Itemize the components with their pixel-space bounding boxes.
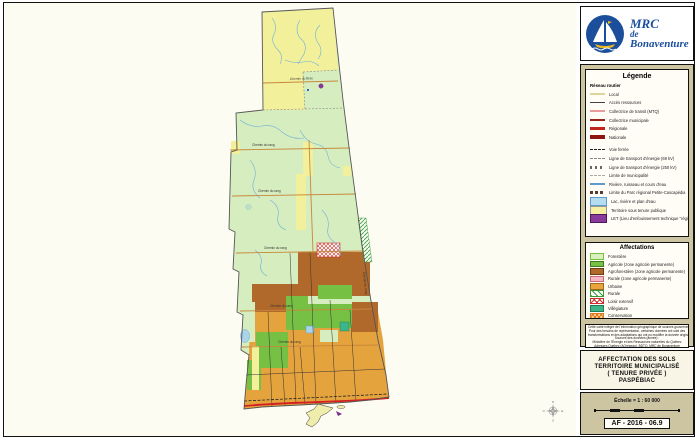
legend-item: Urbaine (590, 283, 685, 290)
svg-text:Chemin du rang: Chemin du rang (252, 143, 275, 147)
legend-item: Territoire sous tenure publique (590, 206, 685, 215)
legend-item: Conservation (590, 312, 685, 319)
riviere-swatch (590, 183, 605, 185)
title-line-3: ( TENURE PRIVÉE ) (581, 371, 693, 377)
legend-title: Légende (589, 73, 685, 80)
parc-swatch (590, 191, 605, 194)
legend-item-label: Territoire sous tenure publique (611, 208, 666, 213)
legend-item-label: Collectrice municipale (609, 118, 649, 123)
legend-item: Rivière, ruisseau et cours d'eau (590, 180, 685, 189)
ferree-swatch (590, 149, 605, 150)
legend-item: Régionale (590, 124, 685, 133)
conservation-swatch (590, 313, 604, 319)
legend-item-label: Conservation (608, 313, 632, 318)
legend-item: Villégiature (590, 305, 685, 312)
compass-n: N (552, 400, 554, 404)
legend-item: Lac, rivière et plan d'eau (590, 197, 685, 206)
legend-item: Collectrice de transit (MTQ) (590, 107, 685, 116)
legend-item-label: Ligne de transport d'énergie (69 kV) (609, 156, 674, 161)
legend-item: Voie ferrée (590, 146, 685, 155)
compass-s: S (552, 419, 554, 423)
colmun-swatch (590, 119, 605, 121)
logo-wordmark: MRC de Bonaventure (630, 17, 689, 51)
legend-item-label: Nationale (609, 135, 626, 140)
legend-item-label: Rurale (608, 291, 620, 296)
title-line-4: PASPÉBIAC (581, 378, 693, 384)
legend-item: Agricole (zone agricole permanente) (590, 260, 685, 267)
site-marker (307, 89, 309, 91)
legend-item-label: Voie ferrée (609, 147, 629, 152)
let-swatch (590, 214, 607, 223)
zone-loisir-extensif (317, 243, 340, 257)
legend-item: Local (590, 90, 685, 99)
legend-item-label: Villégiature (608, 306, 628, 311)
e250-swatch (590, 166, 605, 169)
legend-item-label: Accès ressources (609, 100, 641, 105)
loisir-swatch (590, 298, 604, 305)
legend-item-label: Limite du Parc régional Petite-Cascapédi… (609, 190, 685, 195)
legend-item: Accès ressources (590, 99, 685, 108)
legend-roads-heading: Réseau routier (590, 83, 685, 88)
legend-item: Limite du Parc régional Petite-Cascapédi… (590, 189, 685, 198)
svg-text:Chemin du rang: Chemin du rang (264, 246, 287, 250)
legend-item: Loisir extensif (590, 297, 685, 304)
road-label-main: Chemin du Bras (290, 76, 313, 81)
affectation-items: ForestièreAgricole (zone agricole perman… (589, 253, 685, 319)
legend-item-label: Lac, rivière et plan d'eau (611, 199, 655, 204)
svg-text:Chemin du rang: Chemin du rang (270, 304, 293, 308)
rurale-swatch (590, 290, 604, 297)
disclaimer-line: Adresses Québec (AQréseau), BDTQ, MRC de… (588, 345, 686, 348)
logo-box: MRC de Bonaventure (580, 6, 694, 61)
sheet-code: AF - 2016 - 06.9 (604, 418, 671, 429)
legend-item-label: Forestière (608, 254, 626, 259)
legend-item: Ligne de transport d'énergie (250 kV) (590, 163, 685, 172)
acces-swatch (590, 102, 605, 103)
let-site-marker (319, 84, 323, 88)
regionale-swatch (590, 127, 605, 130)
limitemun-swatch (590, 175, 605, 176)
urbaine-swatch (590, 283, 604, 290)
forestiere-swatch (590, 253, 604, 260)
legend-item: Rurale (zone agricole permanente) (590, 275, 685, 282)
coltransit-swatch (590, 110, 605, 112)
mrc-sailboat-logo-icon (585, 14, 625, 54)
scale-bar (594, 409, 680, 412)
legend-item: Forestière (590, 253, 685, 260)
legend-item-label: Agricole (zone agricole permanente) (608, 262, 674, 267)
legend-item: Nationale (590, 133, 685, 142)
logo-line-mrc: MRC (630, 17, 689, 30)
title-line-1: AFFECTATION DES SOLS (581, 357, 693, 363)
logo-line-bonaventure: Bonaventure (630, 39, 689, 50)
legend-item-label: Collectrice de transit (MTQ) (609, 109, 659, 114)
legend-item: Collectrice municipale (590, 116, 685, 125)
legend-line-items: Voie ferréeLigne de transport d'énergie … (589, 146, 685, 223)
e69-swatch (590, 158, 605, 159)
svg-text:Chemin du rang: Chemin du rang (278, 340, 301, 344)
legend-item: Agroforestière (zone agricole permanente… (590, 268, 685, 275)
legend-item-label: LET (Lieu d'enfouissement technique "rég… (611, 216, 689, 221)
ruralezap-swatch (590, 276, 604, 283)
map-canvas: Chemin du Bras Chemin du rang Chemin du … (5, 3, 576, 437)
legend-item-label: Loisir extensif (608, 299, 633, 304)
legend-item-label: Limite de municipalité (609, 173, 648, 178)
legend-item: LET (Lieu d'enfouissement technique "rég… (590, 214, 685, 223)
compass-e: E (561, 409, 563, 413)
legend-item-label: Ligne de transport d'énergie (250 kV) (609, 165, 676, 170)
legend-panel: Légende Réseau routier LocalAccès ressou… (580, 64, 694, 347)
legend-item-label: Urbaine (608, 284, 622, 289)
legend-item: Limite de municipalité (590, 171, 685, 180)
nationale-swatch (590, 135, 605, 139)
legend-road-items: LocalAccès ressourcesCollectrice de tran… (589, 90, 685, 142)
affectations-box: Affectations ForestièreAgricole (zone ag… (585, 242, 689, 319)
title-line-2: TERRITOIRE MUNICIPALISÉ (581, 364, 693, 370)
legend-item: Rurale (590, 290, 685, 297)
legend-item-label: Agroforestière (zone agricole permanente… (608, 269, 685, 274)
svg-text:Chemin du rang: Chemin du rang (258, 189, 281, 193)
scale-block: Échelle = 1 : 60 000 AF - 2016 - 06.9 (580, 392, 694, 435)
scale-text: Échelle = 1 : 60 000 (581, 398, 693, 404)
legend-item-label: Régionale (609, 126, 627, 131)
disclaimer-box: Cette carte intègre de l'information géo… (585, 324, 689, 348)
local-swatch (590, 93, 605, 95)
legend-item-label: Rivière, ruisseau et cours d'eau (609, 182, 666, 187)
agroforestiere-swatch (590, 268, 604, 275)
legend-item: Ligne de transport d'énergie (69 kV) (590, 154, 685, 163)
affectations-title: Affectations (589, 245, 685, 251)
legend-item-label: Local (609, 92, 619, 97)
agricole-swatch (590, 261, 604, 268)
villegiature-swatch (590, 305, 604, 312)
title-block: AFFECTATION DES SOLS TERRITOIRE MUNICIPA… (580, 350, 694, 390)
legend-box: Légende Réseau routier LocalAccès ressou… (585, 69, 689, 237)
legend-item-label: Rurale (zone agricole permanente) (608, 276, 671, 281)
